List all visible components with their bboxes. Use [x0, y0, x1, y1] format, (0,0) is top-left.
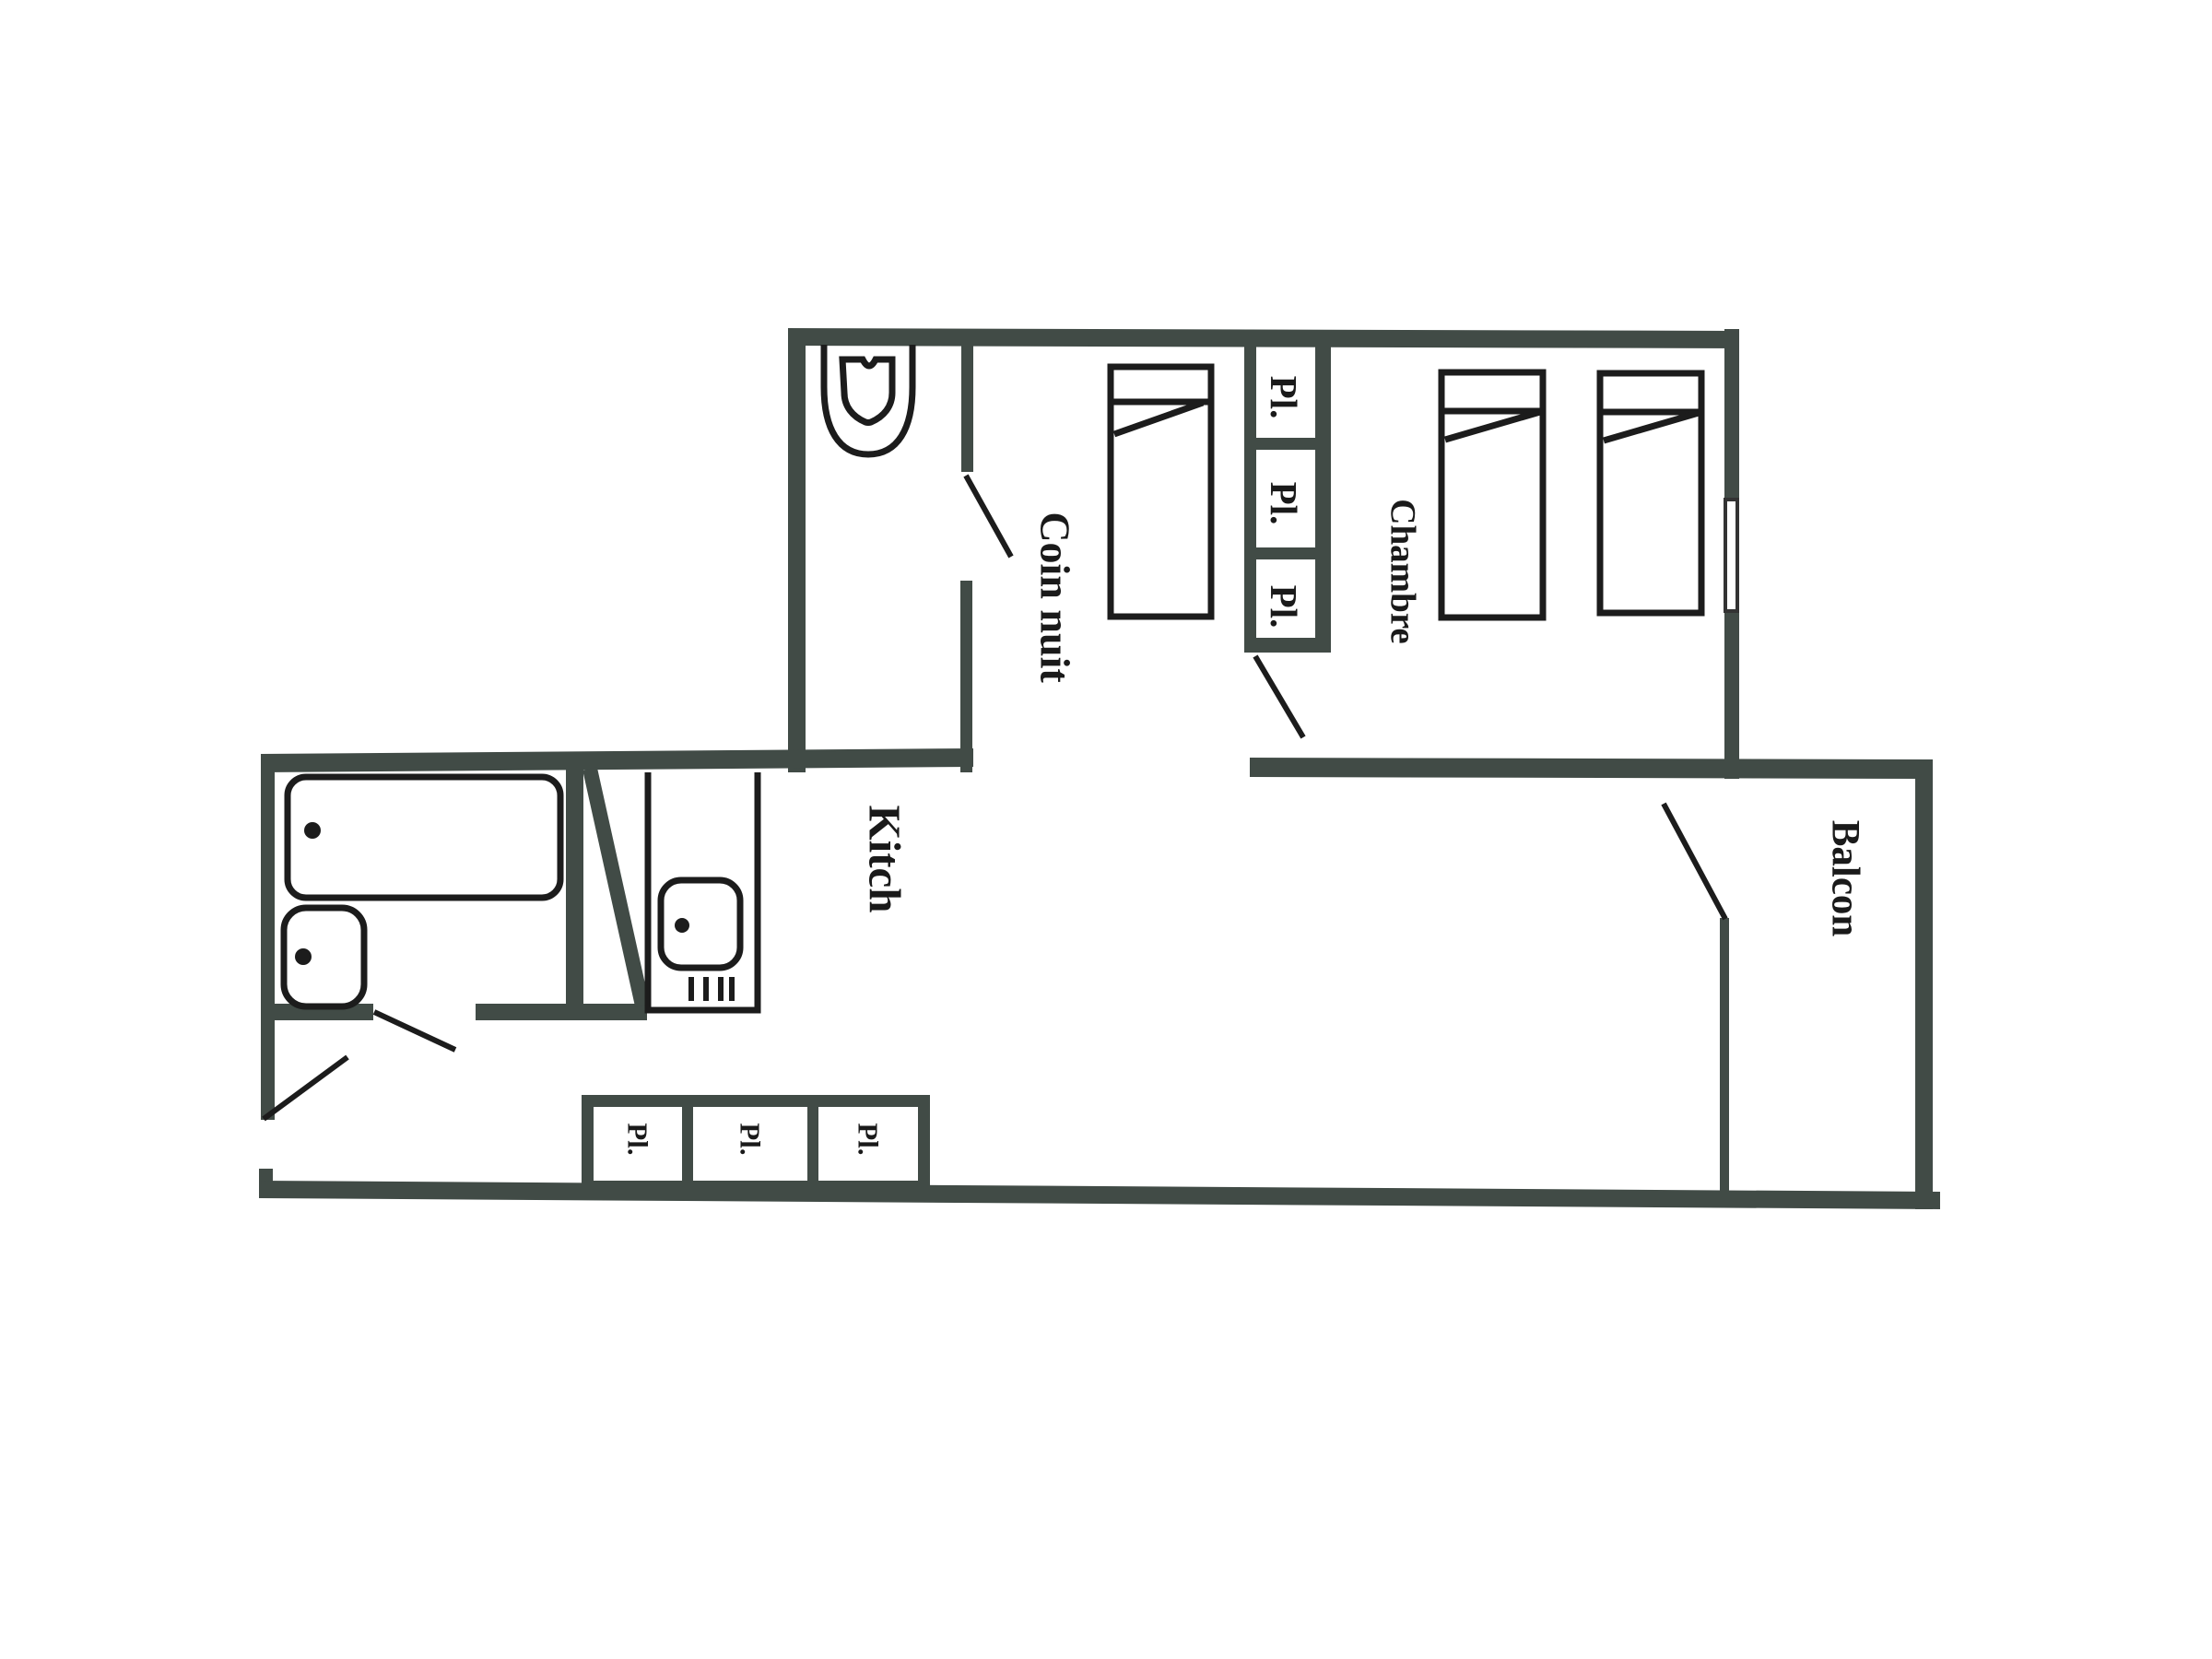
- svg-text:Pl.: Pl.: [1263, 376, 1305, 419]
- svg-text:Kitch: Kitch: [860, 805, 911, 912]
- svg-text:Pl.: Pl.: [622, 1123, 654, 1155]
- svg-text:Pl.: Pl.: [853, 1123, 885, 1155]
- svg-text:Chambre: Chambre: [1383, 499, 1423, 643]
- svg-text:Pl.: Pl.: [1263, 482, 1305, 525]
- svg-text:Balcon: Balcon: [1824, 820, 1867, 937]
- svg-text:Pl.: Pl.: [735, 1123, 767, 1155]
- svg-text:Pl.: Pl.: [1263, 585, 1305, 629]
- svg-text:Coin nuit: Coin nuit: [1032, 512, 1079, 683]
